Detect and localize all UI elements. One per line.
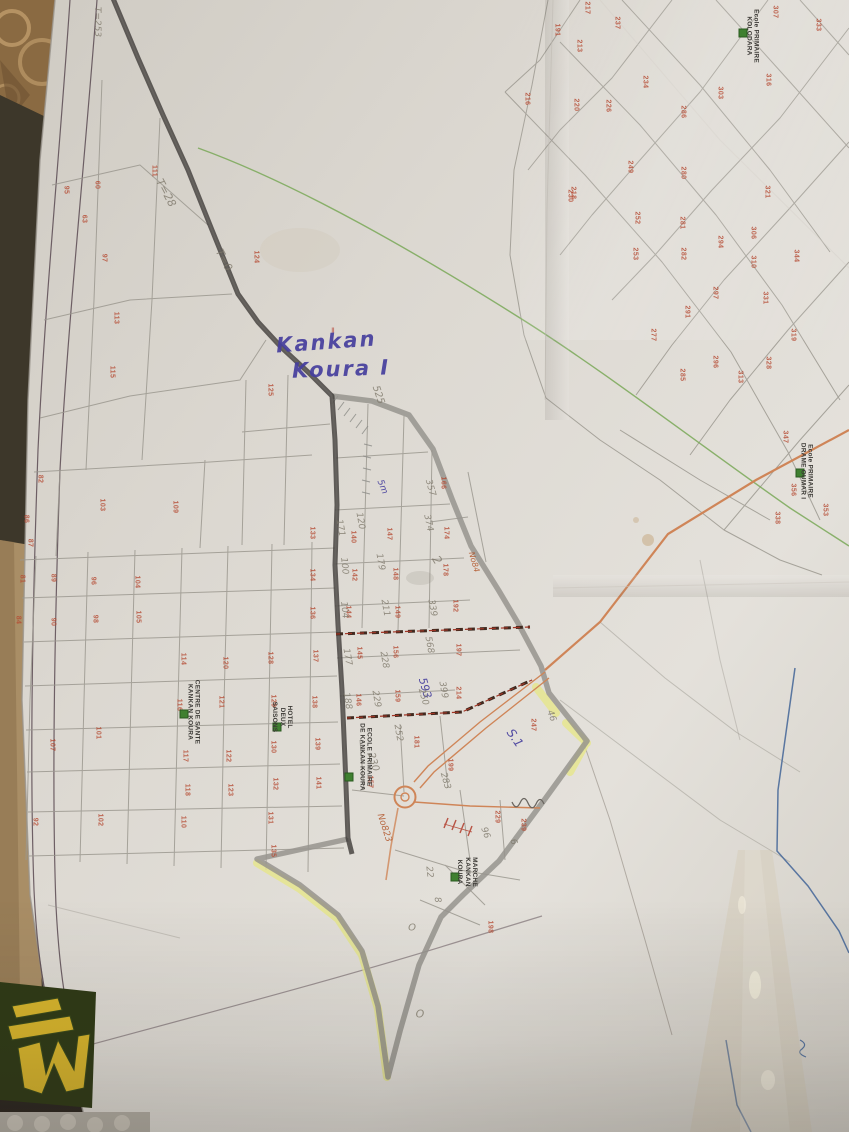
map-photo: Kankan Koura I 9597111124113115125230217… [0,0,849,1132]
bubble-wrap [0,1112,150,1132]
map-drawing [0,0,849,1132]
agency-logo [0,982,96,1108]
